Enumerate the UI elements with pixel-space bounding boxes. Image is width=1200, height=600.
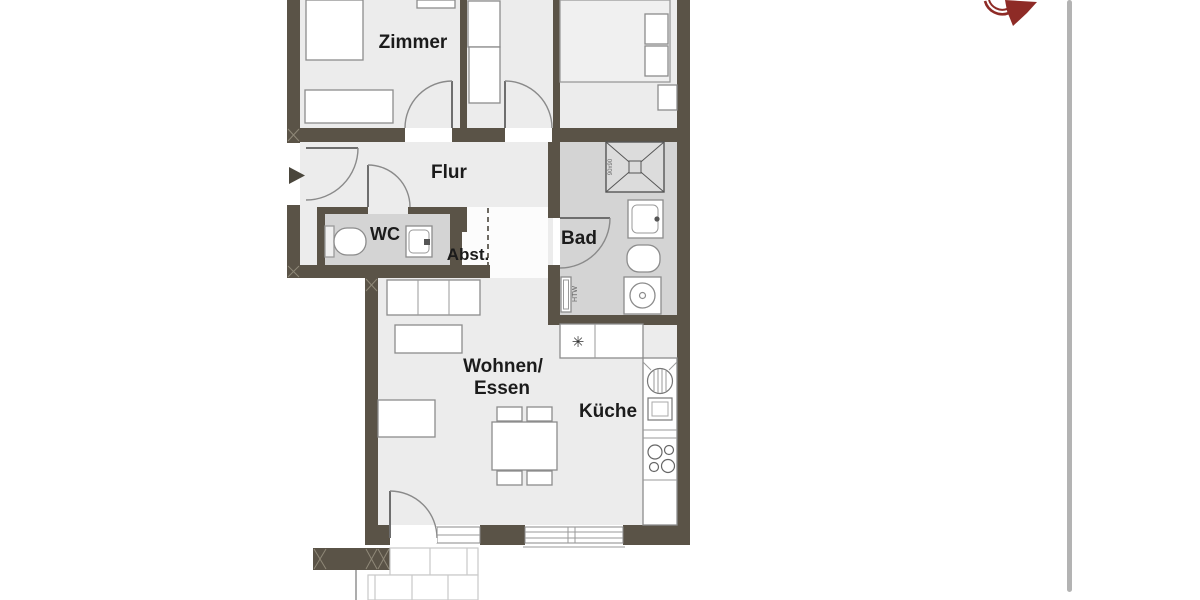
nightstand — [658, 85, 677, 110]
pillow — [645, 46, 668, 76]
pillow — [645, 14, 668, 44]
compass-north-icon — [985, 0, 1037, 26]
chair — [527, 407, 552, 421]
sofa — [378, 400, 435, 437]
shower-size-label: 90x90 — [608, 158, 614, 175]
chair — [527, 471, 552, 485]
wohnen-essen-label-line2: Essen — [474, 378, 530, 399]
wc-cistern — [325, 226, 334, 257]
abstellraum-label: Abst. — [447, 245, 490, 264]
wardrobe-upper — [468, 1, 500, 47]
wc-toilet — [334, 228, 366, 255]
wc-label: WC — [370, 224, 400, 244]
floor-plan-page: 90x90 HTW — [0, 0, 1200, 600]
sofa-table — [395, 325, 462, 353]
shower: 90x90 — [606, 142, 664, 192]
kitchen-basin — [648, 398, 672, 420]
zimmer-label: Zimmer — [379, 32, 448, 53]
zimmer-desk — [417, 0, 455, 8]
wardrobe-lower — [469, 47, 500, 103]
zimmer-sideboard — [305, 90, 393, 123]
bad-faucet — [654, 216, 659, 221]
page-divider-line — [1067, 0, 1072, 592]
kitchen-top-counter: ✳ — [560, 324, 643, 358]
sideboard — [387, 280, 480, 315]
towel-radiator-label: HTW — [572, 286, 579, 302]
zimmer-bed — [306, 0, 363, 60]
wc-faucet — [424, 239, 430, 245]
floor-plan-drawing: 90x90 HTW — [0, 0, 1200, 600]
dining-table — [492, 422, 557, 470]
wohnen-essen-label-line1: Wohnen/ — [463, 356, 544, 377]
living-window — [525, 527, 623, 543]
kueche-label: Küche — [579, 401, 637, 422]
bad-toilet — [627, 245, 660, 272]
middle-room-furniture — [468, 1, 500, 103]
kitchen-right-counter — [643, 358, 677, 525]
bad-label: Bad — [561, 228, 597, 249]
fridge-symbol: ✳ — [572, 334, 585, 351]
washing-machine — [624, 277, 661, 314]
chair — [497, 407, 522, 421]
chair — [497, 471, 522, 485]
balcony-door-threshold — [390, 527, 437, 543]
flur-label: Flur — [431, 162, 467, 183]
